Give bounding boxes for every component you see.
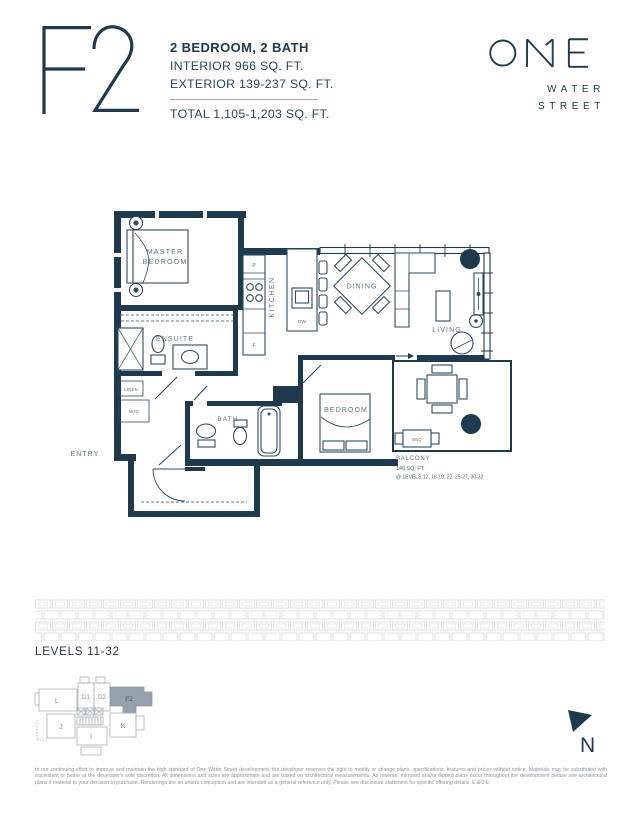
floorplan-drawing: MASTER BEDROOM ENSUITE KITCHEN DINING LI… [55, 193, 535, 538]
bed-icon [320, 394, 370, 452]
balcony-area: 146 SQ. FT. [396, 466, 425, 472]
keyplan-label-j: J [59, 724, 63, 731]
unit-exterior: EXTERIOR 139-237 SQ. FT. [170, 77, 334, 91]
label-master-1: MASTER [147, 247, 184, 256]
column-living [460, 249, 480, 269]
label-bath: BATH [217, 416, 238, 423]
label-kitchen: KITCHEN [269, 276, 276, 317]
kitchen-counter-icon [243, 255, 265, 355]
media-unit-icon [470, 273, 484, 328]
floorplan-page: 2 BEDROOM, 2 BATH INTERIOR 966 SQ. FT. E… [0, 0, 638, 825]
north-label: N [580, 734, 595, 757]
label-fridge: F [252, 343, 255, 349]
keyplan-label-d1: D1 [82, 695, 90, 701]
levels-label: LEVELS 11-32 [35, 646, 120, 658]
digit-2 [94, 27, 139, 111]
shower-icon [118, 328, 143, 370]
label-entry: ENTRY [70, 451, 99, 458]
ensuite-sink-icon [173, 345, 207, 369]
brand-water: WATER [489, 84, 605, 95]
disclaimer-text: In our continuing effort to improve and … [35, 767, 607, 786]
label-living: LIVING [432, 327, 462, 334]
bath-door-leaf [194, 386, 207, 400]
unit-total: TOTAL 1,105-1,203 SQ. FT. [170, 107, 334, 121]
keyplan-label-i: I [90, 734, 92, 741]
keyplan: L D1 D2 F2 J I K [33, 672, 171, 760]
entry-mat-icon [141, 502, 247, 512]
unit-stats: 2 BEDROOM, 2 BATH INTERIOR 966 SQ. FT. E… [170, 40, 334, 121]
label-dishwasher: DW [298, 319, 307, 324]
label-dining: DINING [346, 284, 377, 291]
keyplan-label-f2: F2 [125, 696, 133, 703]
patio-set-icon [417, 365, 467, 413]
bathtub-icon [258, 406, 280, 456]
bar-stools-icon [319, 261, 327, 325]
keyplan-stairs [77, 717, 103, 725]
keyplan-unit-i [77, 727, 107, 745]
side-table-icon [436, 291, 450, 321]
one-wordmark-icon [489, 36, 605, 72]
balcony-levels: @ LEVELS 12, 16-19, 22, 25-27, 30-32 [396, 475, 484, 481]
label-bbq: BBQ [412, 437, 422, 442]
keyplan-label-d2: D2 [98, 695, 106, 701]
label-wd: W/D [129, 409, 139, 415]
letter-f [43, 26, 92, 114]
plan-code-logo [33, 23, 145, 117]
stats-divider [170, 99, 318, 100]
keyplan-label-l: L [55, 698, 59, 705]
keyplan-label-k: K [121, 723, 126, 730]
entry-door-icon [153, 469, 185, 501]
label-balcony: BALCONY [396, 456, 430, 462]
bath-sink-icon [197, 424, 216, 447]
label-master-2: BEDROOM [143, 257, 188, 266]
armchair-icon [451, 332, 473, 354]
closet-rail-icon [121, 315, 235, 321]
label-linen: LINEN [124, 387, 138, 392]
unit-type: 2 BEDROOM, 2 BATH [170, 40, 334, 55]
bedroom-door-leaf [303, 365, 321, 383]
balcony-door-arrow [396, 353, 414, 359]
brand-logo: WATER STREET [489, 36, 605, 112]
hall-door-leaves [155, 377, 181, 465]
column-balcony [461, 414, 481, 434]
label-bedroom: BEDROOM [324, 407, 368, 414]
north-arrow-icon: N [562, 702, 612, 757]
bath-toilet-icon [234, 420, 248, 445]
sofa-icon [395, 253, 435, 327]
keyplan-elevators [77, 708, 103, 715]
unit-interior: INTERIOR 966 SQ. FT. [170, 59, 334, 73]
label-ensuite: ENSUITE [156, 336, 194, 343]
brand-street: STREET [489, 101, 605, 112]
pattern-strip [35, 599, 605, 641]
